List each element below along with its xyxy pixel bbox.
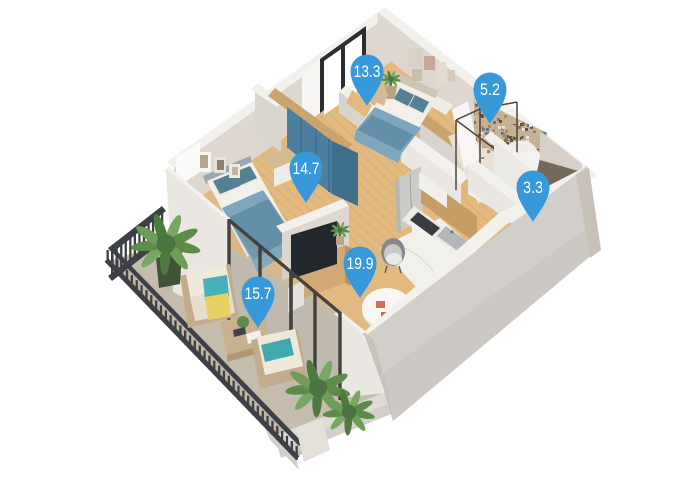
svg-text:3.3: 3.3 [523,178,543,197]
svg-text:15.7: 15.7 [245,284,272,303]
svg-text:19.9: 19.9 [347,254,374,273]
svg-text:13.3: 13.3 [354,62,381,81]
svg-text:5.2: 5.2 [480,80,500,99]
svg-text:14.7: 14.7 [293,159,320,178]
